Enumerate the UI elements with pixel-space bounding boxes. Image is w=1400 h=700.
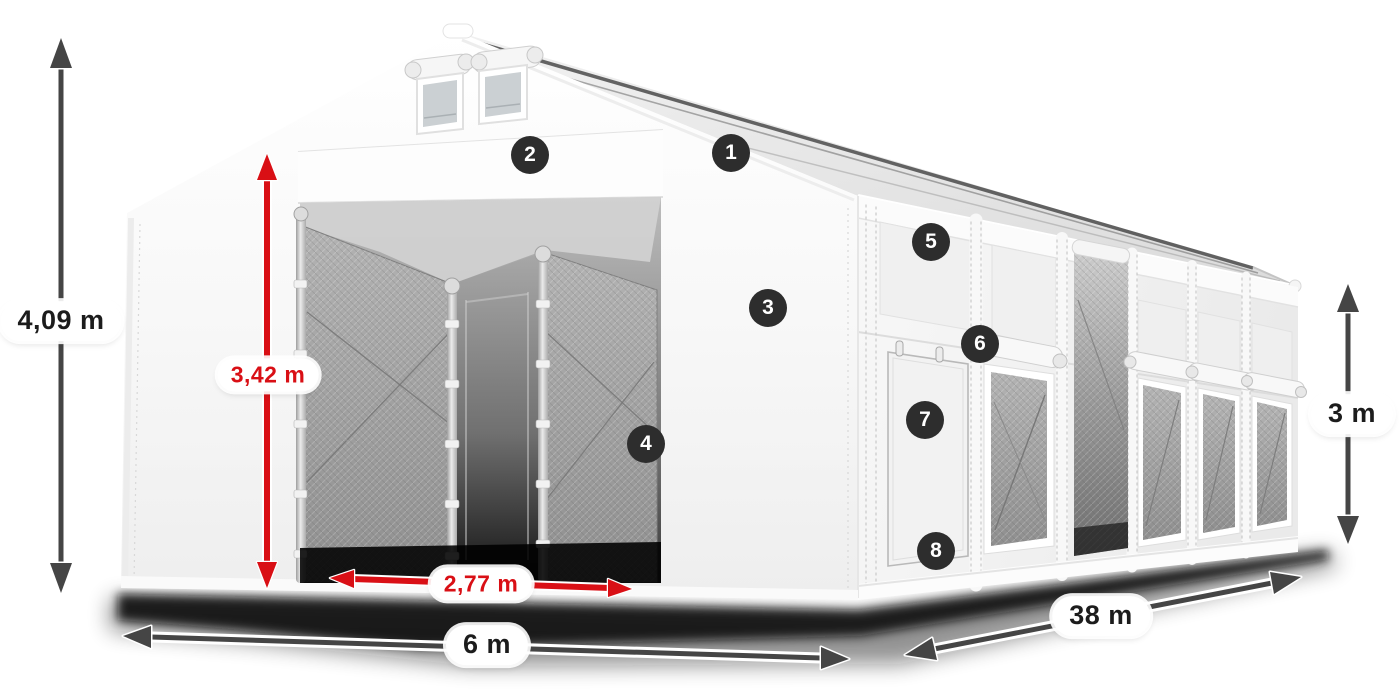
dimension-label-side-height: 3 m: [1311, 394, 1393, 434]
entrance-opening: [294, 197, 661, 583]
dimension-label-entrance-width: 2,77 m: [431, 567, 532, 600]
dimension-label-front-width: 6 m: [446, 625, 528, 665]
marker-1[interactable]: 1: [712, 134, 750, 172]
marker-7[interactable]: 7: [906, 401, 944, 439]
marker-4[interactable]: 4: [627, 425, 665, 463]
marker-3[interactable]: 3: [749, 289, 787, 327]
marker-6[interactable]: 6: [961, 325, 999, 363]
side-door-flap: [888, 341, 968, 566]
marker-8[interactable]: 8: [917, 532, 955, 570]
tent-dimensions-figure: 4,09 m 3,42 m 2,77 m 6 m 38 m 3 m 1 2 3 …: [0, 0, 1400, 700]
entrance-door-right: [543, 252, 657, 582]
dimension-label-entrance-height: 3,42 m: [218, 358, 319, 391]
dimension-label-total-height: 4,09 m: [0, 301, 121, 341]
marker-2[interactable]: 2: [511, 136, 549, 174]
tent-illustration: [0, 0, 1400, 700]
entrance-door-left: [303, 226, 452, 582]
side-entrance-opening: [1071, 239, 1131, 556]
marker-5[interactable]: 5: [912, 223, 950, 261]
dimension-label-length: 38 m: [1052, 596, 1150, 636]
